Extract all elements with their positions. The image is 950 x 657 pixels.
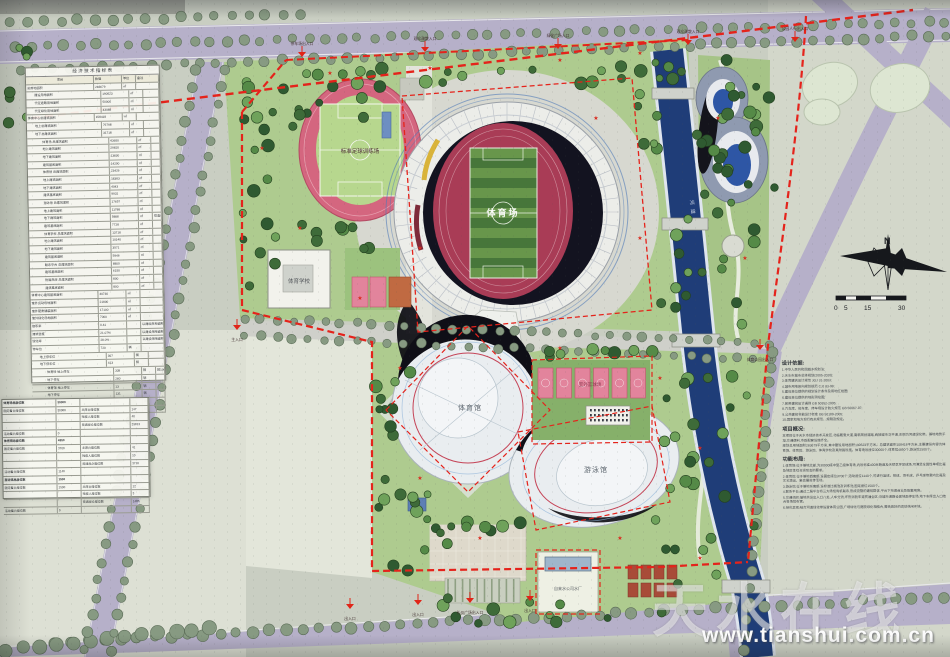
tree (757, 458, 768, 469)
tree (176, 11, 186, 21)
tree (185, 624, 199, 638)
tree (664, 25, 672, 33)
star-marker: ★ (477, 535, 482, 542)
tree (352, 33, 360, 41)
tree (907, 20, 915, 28)
tree (760, 426, 770, 436)
tree (255, 314, 264, 323)
tree (458, 71, 467, 80)
tree (679, 378, 689, 388)
tree (424, 491, 431, 498)
tree (760, 38, 770, 48)
tree (366, 319, 376, 329)
natatorium-label: 游泳馆 (584, 465, 608, 474)
tree (432, 342, 440, 350)
tree (281, 624, 293, 636)
notes-line: 5.交通组织:基地共设出入口八处,人车分流,环形消防车道贯通全区;沿城市道路设置… (783, 494, 946, 505)
tree (82, 626, 93, 637)
tree (214, 100, 222, 108)
tree (413, 619, 422, 628)
tree (712, 208, 723, 219)
tree (304, 335, 311, 342)
tree (298, 625, 308, 635)
tree (655, 334, 662, 341)
water-plant: 自来水公司水厂 (538, 552, 598, 612)
tree (942, 32, 950, 40)
tree (744, 180, 752, 188)
tree (637, 332, 647, 342)
tree (257, 331, 267, 341)
tree (528, 613, 539, 624)
tree (314, 623, 324, 633)
tree (216, 81, 226, 91)
tree (23, 53, 30, 60)
tree (763, 92, 775, 104)
tree (719, 490, 731, 502)
star-marker: ★ (742, 255, 747, 262)
tree (684, 215, 692, 223)
tree (141, 40, 151, 50)
tree (670, 432, 680, 442)
entrance-label: 停车场出入口 (291, 41, 314, 46)
tree (191, 205, 200, 214)
tree (57, 17, 66, 26)
tree (206, 137, 215, 146)
tree (4, 87, 15, 98)
tree (380, 621, 390, 631)
tree (80, 645, 88, 653)
tree (737, 319, 747, 329)
svg-text:5: 5 (844, 305, 848, 312)
star-marker: ★ (427, 65, 432, 72)
tree (181, 59, 189, 67)
tree (112, 609, 123, 620)
indicator-table: 经 济 技 术 指 标 表 项目 数值 单位 备注 总用地面积283679㎡建设… (25, 65, 167, 384)
star-marker: ★ (715, 115, 720, 122)
tree (907, 30, 917, 40)
tree (208, 118, 218, 128)
tree (173, 293, 184, 304)
tree (890, 18, 899, 27)
tree (251, 146, 259, 154)
tree (667, 73, 679, 85)
tree (241, 315, 249, 323)
tree (354, 318, 362, 326)
tree (356, 92, 367, 103)
tree (416, 338, 426, 348)
entrance-label: 观众疏散入口 (414, 36, 437, 41)
sports-school-label: 体育学校 (288, 277, 311, 285)
tree (467, 29, 477, 39)
tree (420, 546, 429, 555)
tree (925, 16, 935, 26)
tree (194, 13, 202, 21)
tree (681, 291, 690, 300)
tree (940, 18, 949, 27)
tree (196, 187, 205, 196)
tree (271, 233, 280, 242)
tree (150, 625, 164, 639)
tree (875, 20, 884, 29)
tree (825, 36, 834, 45)
tree (176, 154, 184, 162)
tree (670, 335, 677, 342)
tree (356, 66, 366, 76)
tree (487, 603, 500, 616)
tree (106, 646, 116, 656)
tree (431, 324, 440, 333)
tree (635, 89, 645, 99)
tree (305, 316, 315, 326)
tree (726, 404, 734, 412)
tree (704, 458, 713, 467)
entrance-label: 绿化广场入口 (547, 33, 570, 38)
tree (156, 38, 166, 48)
tree (717, 337, 725, 345)
tree (331, 622, 341, 632)
entrance-label: 出入口 (524, 608, 536, 613)
tree (312, 69, 323, 80)
notes-line: 规划总用地面积283679平方米,其中建设用地面积190523平方米。总建筑面积… (782, 442, 945, 453)
tree (104, 522, 115, 533)
tree (629, 345, 639, 355)
tree (88, 609, 99, 620)
tree (39, 16, 49, 26)
tree (646, 345, 658, 357)
entrance-label: 出入口 (344, 616, 356, 621)
tree (599, 27, 608, 36)
tree (728, 199, 735, 206)
svg-text:30: 30 (898, 305, 906, 312)
gymnasium-label: 体育馆 (458, 403, 482, 412)
tree (247, 184, 260, 197)
tree (630, 25, 639, 34)
training-field-label: 标准足球训练场 (341, 147, 380, 155)
notes-heading: 项目概况: (782, 424, 945, 432)
tree (335, 221, 346, 232)
tree (108, 15, 119, 26)
tree (391, 377, 400, 386)
tree (169, 329, 179, 339)
tree (698, 545, 707, 554)
tree (639, 351, 647, 359)
tree (574, 329, 582, 337)
tree (759, 441, 769, 451)
tree (118, 630, 131, 643)
tree (204, 37, 214, 47)
tree (808, 36, 817, 45)
tree (604, 614, 611, 621)
tree (510, 326, 520, 336)
tree (582, 26, 590, 34)
tree (44, 41, 52, 49)
tree (638, 138, 649, 149)
entrance-label: 公园人行出入口 (782, 26, 809, 31)
watermark-url: www.tianshui.com.cn (702, 624, 935, 648)
tree (728, 90, 739, 101)
tree (263, 624, 275, 636)
tree (654, 42, 663, 51)
tree (273, 35, 281, 43)
tree (129, 540, 138, 549)
tree (170, 624, 185, 639)
tree (474, 619, 482, 627)
tree (713, 24, 723, 34)
tree (404, 366, 416, 378)
tree (269, 108, 277, 116)
tree (574, 348, 582, 356)
notes-line: 本项目位于天水市经济技术开发区,北临羲皇大道,南临规划道路,西接城市次干道,东侧… (782, 432, 945, 443)
tree (684, 268, 692, 276)
tree (700, 190, 709, 199)
tree (503, 616, 516, 629)
tree (661, 545, 670, 554)
tree (216, 629, 226, 639)
star-marker: ★ (417, 475, 422, 482)
tree (452, 31, 460, 39)
tree (279, 10, 288, 19)
tree (259, 9, 270, 20)
tree (670, 229, 682, 241)
tree (161, 60, 171, 70)
tree (316, 99, 323, 106)
tree (587, 343, 599, 355)
tree (465, 343, 473, 351)
tree (875, 35, 883, 43)
tree (109, 41, 118, 50)
tree (443, 594, 452, 603)
tree (101, 539, 111, 549)
tree (259, 124, 270, 135)
tree (659, 436, 670, 447)
tree (337, 34, 347, 44)
tree (726, 37, 736, 47)
tree (269, 258, 280, 269)
tree (692, 130, 702, 140)
tree (124, 41, 132, 49)
tree (396, 620, 405, 629)
tree (663, 395, 670, 402)
tree (506, 46, 517, 57)
tree (652, 59, 659, 66)
tree (844, 20, 852, 28)
star-marker: ★ (657, 375, 662, 382)
tree (172, 37, 182, 47)
entrance-label: 观众疏散入口 (677, 29, 700, 34)
tree (686, 43, 695, 52)
tree (731, 298, 741, 308)
tree (371, 34, 380, 43)
tree (606, 331, 613, 338)
tree (67, 637, 80, 650)
tree (322, 318, 330, 326)
star-marker: ★ (357, 295, 362, 302)
tree (296, 10, 306, 20)
tree (614, 26, 625, 37)
tree (719, 255, 727, 263)
tree (185, 101, 195, 111)
tree (733, 353, 742, 362)
tree (634, 102, 642, 110)
tree (228, 11, 236, 19)
tree (239, 35, 250, 46)
tree (650, 140, 658, 148)
tree (428, 617, 438, 627)
water-plant-label: 自来水公司水厂 (554, 585, 582, 591)
tree (159, 14, 169, 24)
tree (686, 336, 693, 343)
tree (623, 332, 631, 340)
tree (58, 40, 69, 51)
tree (399, 340, 407, 348)
tree (187, 83, 197, 93)
tree (496, 520, 508, 532)
tree (726, 370, 738, 382)
tree (245, 282, 254, 291)
tree (517, 29, 525, 37)
tree (482, 30, 492, 40)
tree (550, 616, 562, 628)
tree (497, 67, 504, 74)
tree (634, 64, 647, 77)
tree (651, 516, 660, 525)
tree (376, 394, 385, 403)
tree (375, 62, 388, 75)
tree (383, 339, 391, 347)
tree (90, 38, 101, 49)
tree (595, 611, 605, 621)
star-marker: ★ (327, 70, 332, 77)
tree (401, 31, 409, 39)
star-marker: ★ (637, 50, 642, 57)
entrance-label: 体育公园出入口 (747, 357, 774, 362)
tree (120, 577, 128, 585)
notes-line: 10.国家和地方现行有关规范、规程及规定。 (782, 417, 945, 423)
tree (677, 68, 685, 76)
tree (177, 136, 186, 145)
tree (220, 65, 230, 75)
tree (90, 15, 101, 26)
tree (97, 559, 106, 568)
tree (130, 522, 141, 533)
tree (424, 516, 431, 523)
tree (261, 218, 273, 230)
tree (5, 18, 14, 27)
tree (231, 628, 240, 637)
tree (601, 346, 609, 354)
tree (698, 268, 706, 276)
tree (501, 29, 510, 38)
tree (744, 106, 757, 119)
tree (294, 109, 305, 120)
tree (245, 11, 254, 20)
tree (117, 593, 126, 602)
star-marker: ★ (397, 365, 402, 372)
tree (321, 337, 329, 345)
tree (345, 622, 357, 634)
site-plan-photo: 体育场 联系平台 体育馆 游泳馆 体育 (0, 0, 950, 657)
tree (753, 83, 760, 90)
tree (717, 428, 728, 439)
tree (748, 224, 760, 236)
tree (294, 56, 304, 66)
tree (76, 41, 85, 50)
tree (17, 641, 29, 653)
tree (189, 222, 200, 233)
tree (597, 67, 605, 75)
tree (722, 108, 734, 120)
tree (211, 59, 220, 68)
tree (532, 29, 541, 38)
tree (745, 36, 756, 47)
tree (671, 283, 682, 294)
tree (255, 248, 266, 259)
tree (171, 311, 179, 319)
tree (858, 19, 867, 28)
tree (674, 249, 684, 259)
tree (680, 475, 692, 487)
tree (527, 327, 536, 336)
tree (408, 492, 418, 502)
tree (923, 31, 934, 42)
entrance-label: 出入口 (412, 612, 424, 617)
tree (334, 336, 344, 346)
tree (734, 338, 741, 345)
tree (385, 420, 397, 432)
tree (376, 406, 383, 413)
tree (251, 112, 263, 124)
tree (739, 141, 751, 153)
tree (743, 392, 750, 399)
tree (688, 418, 700, 430)
tree (702, 354, 711, 363)
tree (439, 79, 447, 87)
tree (287, 334, 297, 344)
tree (514, 517, 526, 529)
entrance-label: 礼仪广场出入口 (457, 610, 484, 615)
tree (419, 75, 432, 88)
tree (558, 329, 566, 337)
tree (348, 223, 357, 232)
tree (489, 50, 498, 59)
tree (198, 171, 207, 180)
tree (625, 608, 637, 620)
tree (544, 346, 554, 356)
tree (123, 14, 132, 23)
svg-text:0: 0 (834, 305, 838, 312)
tree (890, 32, 899, 41)
tree (33, 640, 47, 654)
svg-text:15: 15 (864, 305, 872, 312)
tree (72, 14, 83, 25)
tree (311, 235, 322, 246)
tree (556, 600, 565, 609)
star-marker: ★ (617, 535, 622, 542)
tree (385, 321, 395, 331)
tree (756, 472, 766, 482)
star-marker: ★ (593, 115, 598, 122)
tree (171, 170, 181, 180)
tree (479, 343, 488, 352)
tree (358, 112, 368, 122)
tree (222, 37, 233, 48)
star-marker: ★ (697, 445, 702, 452)
tree (0, 644, 12, 657)
tree (529, 66, 536, 73)
tree (255, 37, 263, 45)
tree (657, 299, 666, 308)
tree (685, 456, 696, 467)
